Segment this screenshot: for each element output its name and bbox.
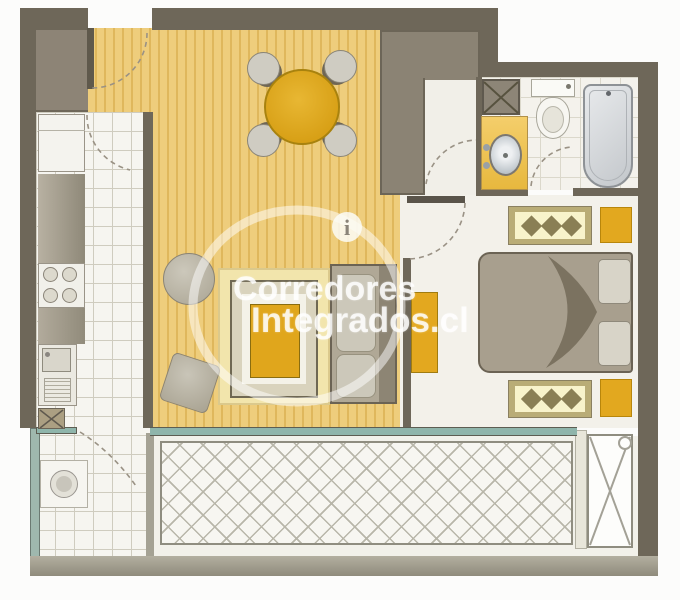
laundry-divider	[146, 433, 154, 556]
duct-shaft	[482, 79, 520, 115]
stove-burner	[43, 267, 58, 282]
refrigerator	[38, 114, 85, 172]
entry-door-leaf	[87, 28, 94, 89]
dining-chair	[324, 50, 357, 83]
stove-burner	[62, 267, 77, 282]
nightstand	[600, 379, 632, 417]
sink-drain-icon	[503, 153, 508, 158]
round-pouf	[163, 253, 215, 305]
refrigerator-door-line	[38, 130, 85, 131]
dresser	[508, 380, 592, 418]
cabinet-x	[38, 408, 65, 429]
nightstand	[600, 207, 632, 243]
watermark-line2: Integrados.cl	[251, 303, 469, 338]
pillow	[598, 321, 631, 366]
closet-block-side	[380, 78, 425, 195]
kitchen-counter-upper	[38, 174, 85, 263]
bathtub-inner	[589, 90, 627, 181]
dresser	[508, 206, 592, 245]
toilet-seat	[542, 106, 564, 133]
bathtub	[583, 84, 633, 188]
kitchen-wall	[143, 112, 153, 428]
balcony-rail	[30, 556, 658, 576]
kitchen-counter-lower	[38, 308, 85, 344]
floor-plan: i Corredores Integrados.cl	[0, 0, 680, 600]
balcony-lattice-panel	[160, 441, 573, 545]
faucet-knob-icon	[483, 162, 490, 169]
faucet-knob-icon	[483, 144, 490, 151]
stove-burner	[43, 288, 58, 303]
wall-top-right	[490, 62, 658, 77]
closet-block	[380, 30, 480, 80]
dish-rack	[44, 378, 71, 402]
toilet-flush-icon	[566, 84, 571, 89]
corridor-floor	[425, 77, 480, 195]
balcony-unit-panel	[587, 434, 633, 548]
stove-burner	[62, 288, 77, 303]
pillow	[598, 259, 631, 304]
wall-right	[638, 62, 658, 558]
bedroom-door-leaf	[407, 196, 465, 203]
tub-drain-icon	[606, 91, 611, 96]
balcony-window-wall	[150, 427, 577, 436]
washer-drum-inner	[56, 476, 72, 492]
laundry-window-wall	[30, 428, 40, 575]
wall-left	[20, 8, 36, 428]
entry-closet	[36, 30, 88, 112]
bathroom-wall-right	[573, 188, 638, 196]
wall-top-main	[152, 8, 498, 30]
kitchen-faucet-icon	[45, 352, 50, 357]
dining-table	[264, 69, 340, 145]
sofa-cushion	[336, 354, 376, 398]
balcony-post	[575, 430, 587, 549]
